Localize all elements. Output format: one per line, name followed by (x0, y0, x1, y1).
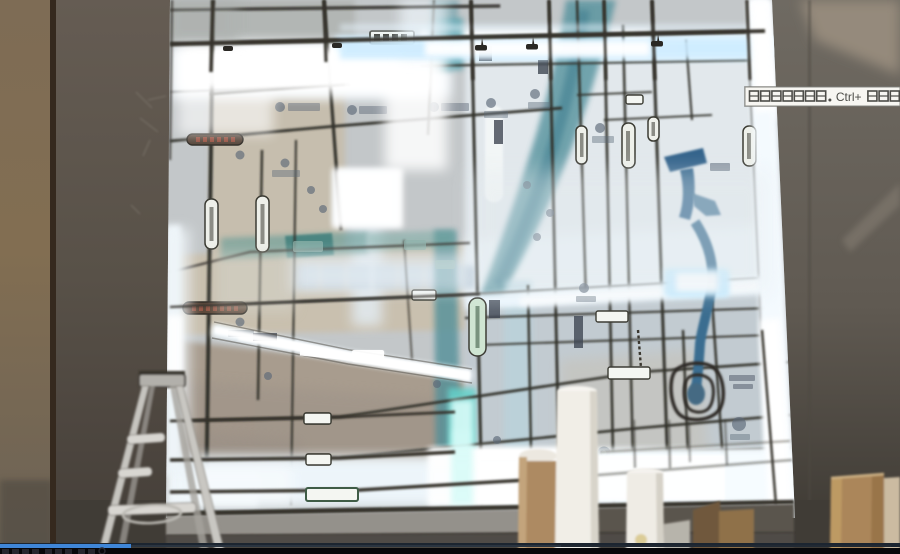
svg-text:Ctrl+: Ctrl+ (836, 90, 862, 104)
